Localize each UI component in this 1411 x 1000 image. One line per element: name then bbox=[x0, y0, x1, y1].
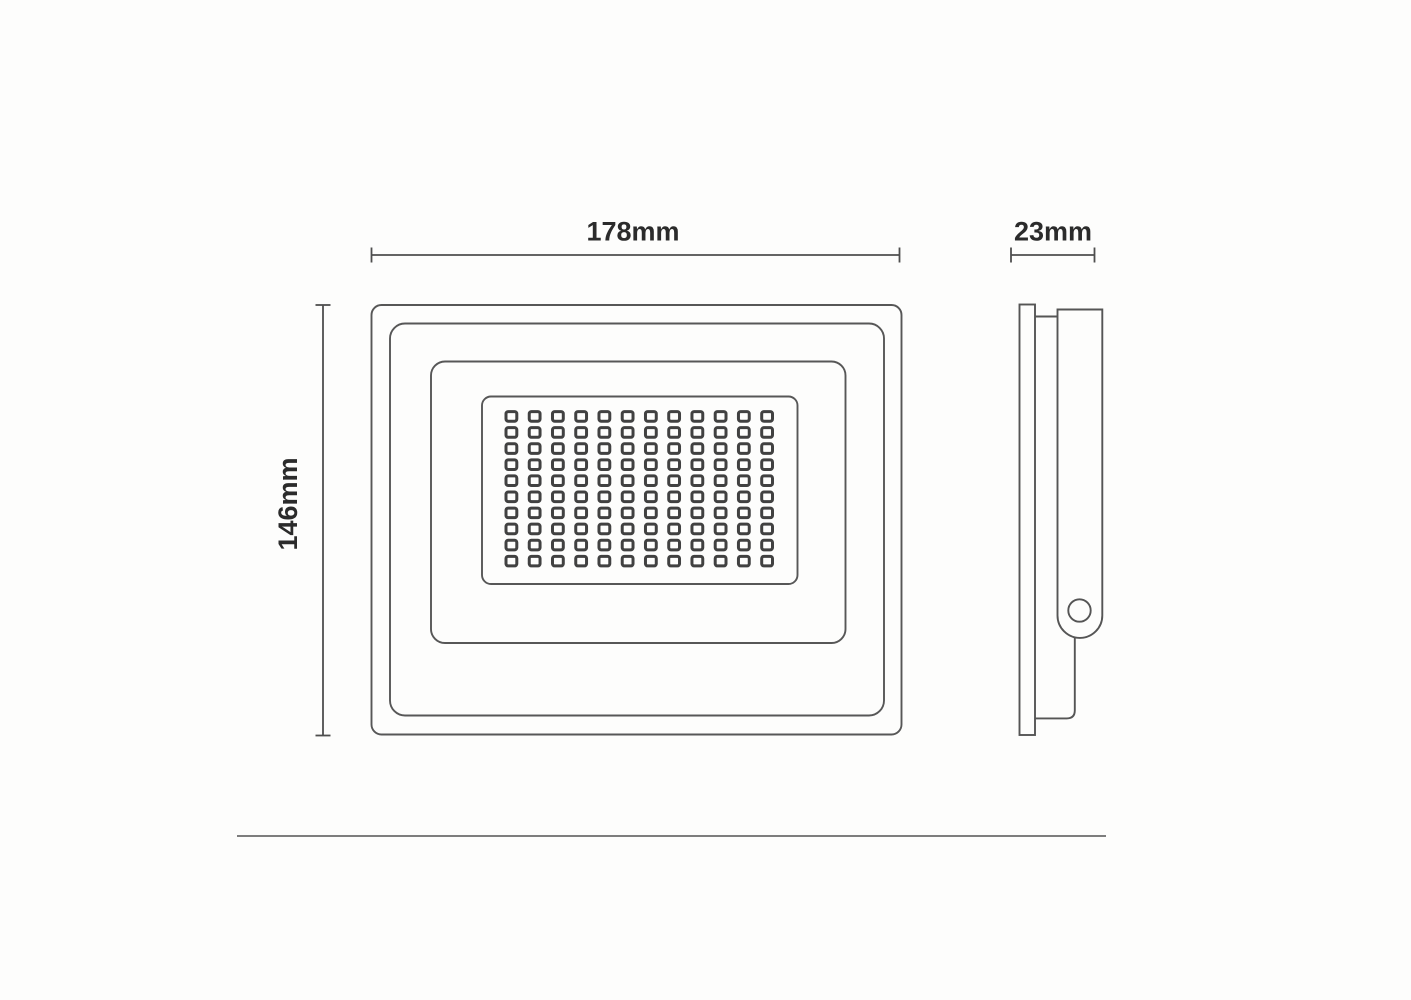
svg-text:23mm: 23mm bbox=[1014, 217, 1092, 247]
svg-text:178mm: 178mm bbox=[586, 217, 679, 247]
svg-text:146mm: 146mm bbox=[273, 457, 303, 550]
